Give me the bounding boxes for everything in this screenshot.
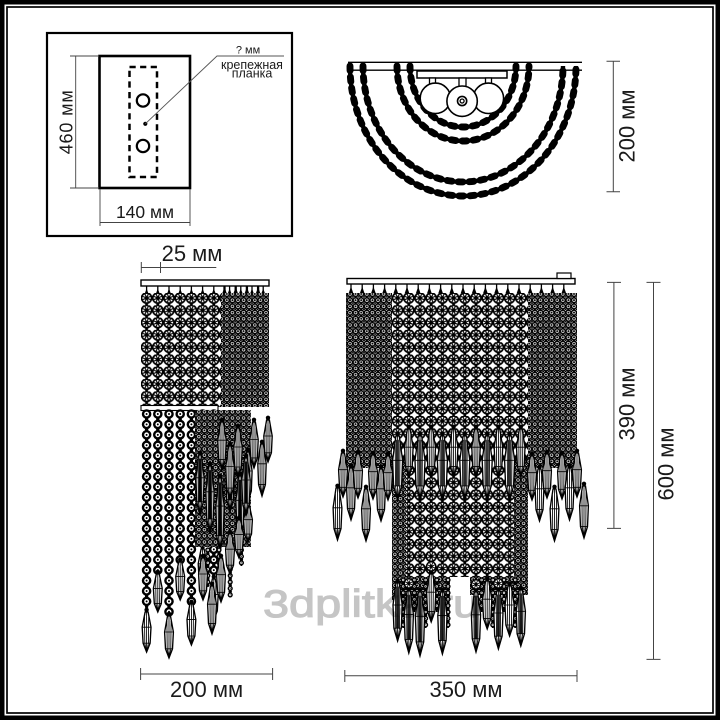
svg-text:3dplitka.ru: 3dplitka.ru <box>263 583 479 626</box>
svg-text:140 мм: 140 мм <box>116 202 174 222</box>
svg-text:390 мм: 390 мм <box>615 367 640 440</box>
svg-text:? мм: ? мм <box>236 45 260 57</box>
svg-text:350 мм: 350 мм <box>429 677 502 702</box>
svg-text:600 мм: 600 мм <box>654 427 679 500</box>
svg-text:460 мм: 460 мм <box>57 90 77 154</box>
svg-text:25 мм: 25 мм <box>162 241 223 266</box>
svg-text:200 мм: 200 мм <box>170 677 243 702</box>
svg-text:200 мм: 200 мм <box>615 89 640 162</box>
svg-text:планка: планка <box>232 67 273 81</box>
